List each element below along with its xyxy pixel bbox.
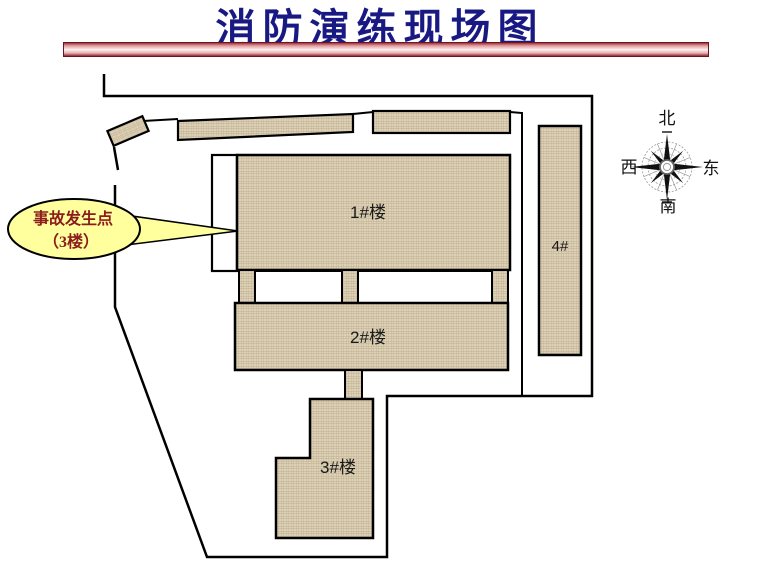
connector-3 xyxy=(492,270,508,303)
callout-text-line1: 事故发生点 xyxy=(33,209,113,228)
north-strip-building-right xyxy=(373,111,510,133)
compass-label-north: 北 xyxy=(659,109,676,128)
building-3-label: 3#楼 xyxy=(320,458,356,477)
connector-4 xyxy=(345,370,362,400)
compass-rose xyxy=(631,132,703,202)
north-fence-segment-left xyxy=(143,119,178,121)
connector-1 xyxy=(239,270,255,303)
callout-text-line2: （3楼） xyxy=(43,232,99,251)
building-2-label: 2#楼 xyxy=(350,328,386,347)
building1-west-annex xyxy=(212,155,237,271)
connector-2 xyxy=(342,270,358,303)
courtyard-right xyxy=(358,271,492,303)
courtyard-left xyxy=(255,271,342,303)
compass-label-south: 南 xyxy=(660,197,677,216)
building-4-label: 4# xyxy=(552,238,569,255)
north-fence-segment-mid xyxy=(353,112,373,114)
tilted-outbuilding xyxy=(107,116,148,146)
north-strip-building-left xyxy=(178,114,353,140)
compass-hub-inner xyxy=(663,163,670,170)
site-map-diagram: 1#楼 2#楼 3#楼 4# 事故发生点 （3楼） xyxy=(0,0,760,564)
building-1-label: 1#楼 xyxy=(350,203,386,222)
compass-label-east: 东 xyxy=(703,159,720,178)
inner-boundary-line xyxy=(510,112,522,395)
slide-canvas: 消防演练现场图 1#楼 xyxy=(0,0,760,564)
compass-label-west: 西 xyxy=(621,158,638,177)
site-boundary-gate-segment xyxy=(114,147,118,170)
